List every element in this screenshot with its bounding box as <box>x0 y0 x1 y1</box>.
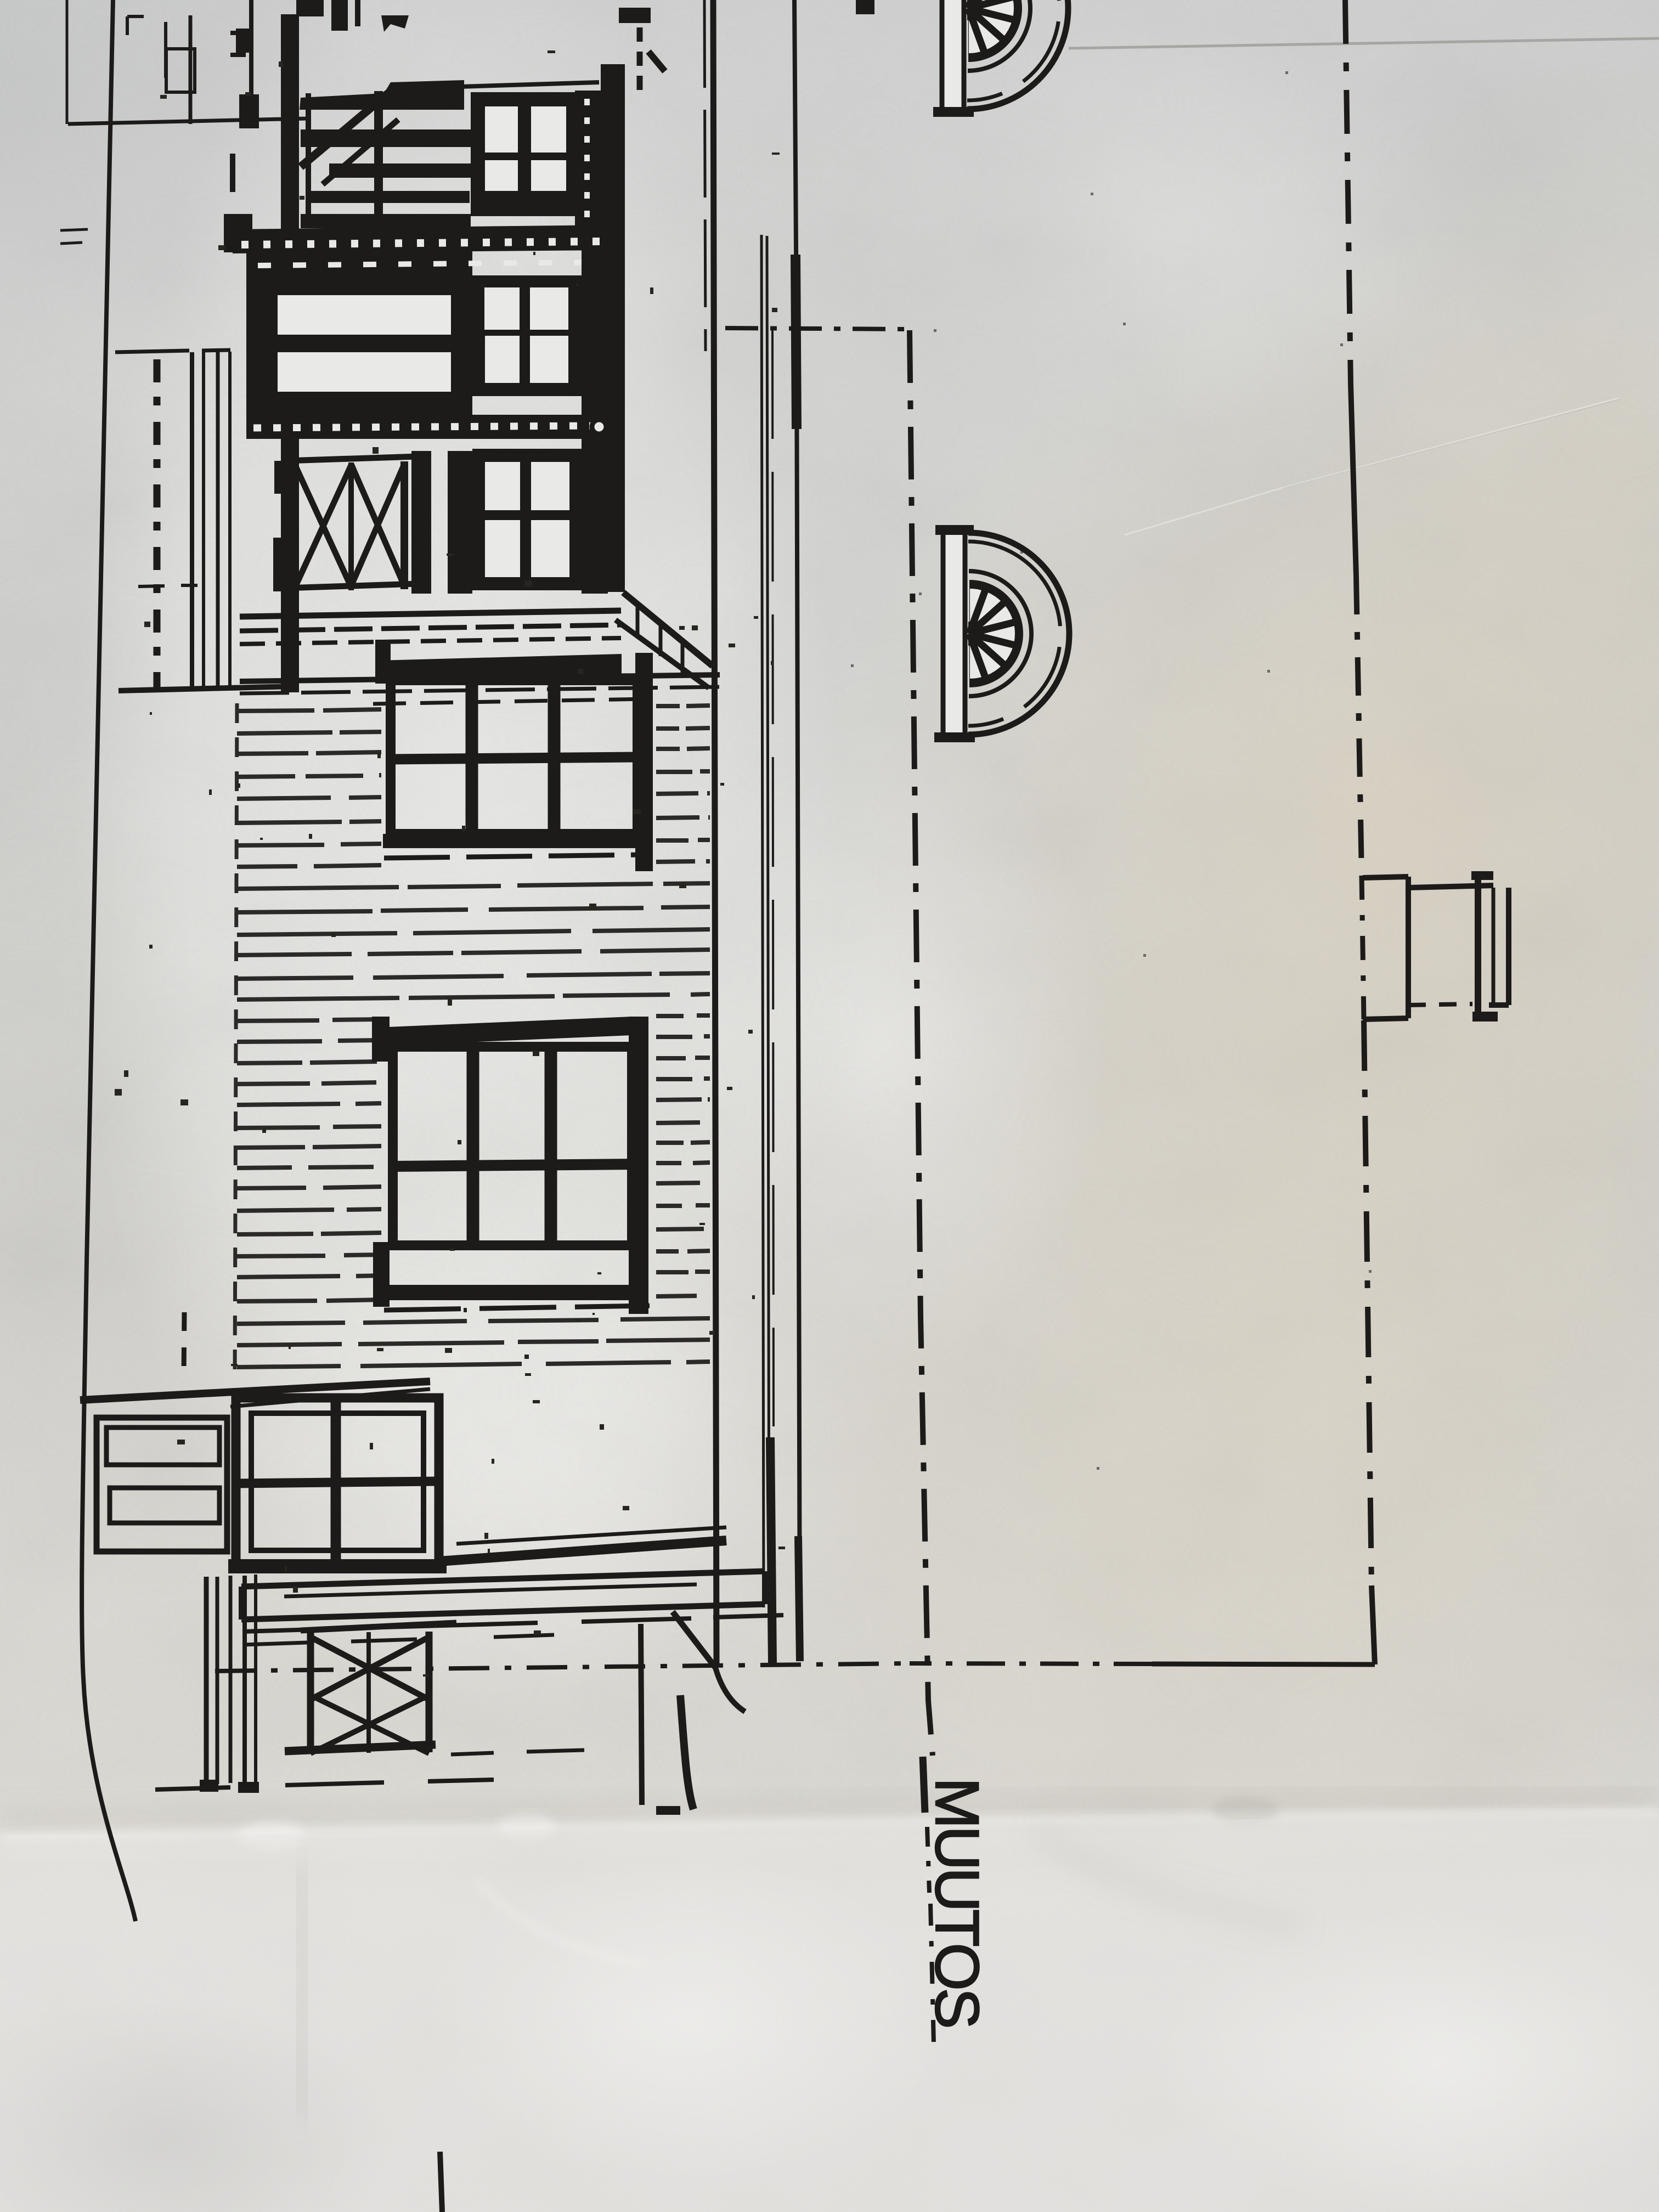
svg-text:MUUTOS: MUUTOS <box>923 1778 991 2027</box>
